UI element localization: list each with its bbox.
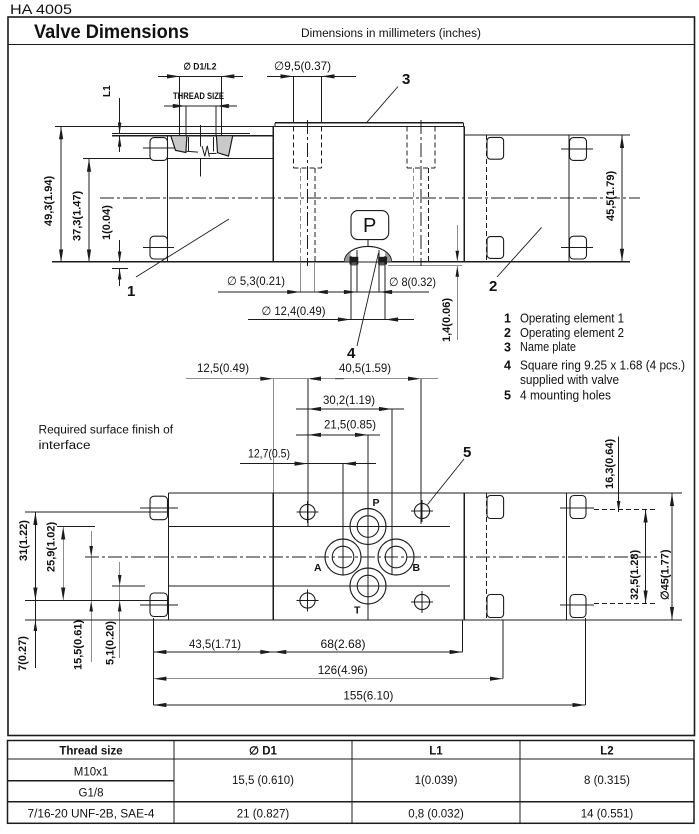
- svg-text:supplied with valve: supplied with valve: [520, 373, 619, 387]
- svg-text:4: 4: [504, 359, 511, 373]
- svg-text:7(0.27): 7(0.27): [17, 636, 29, 671]
- svg-text:16,3(0.64): 16,3(0.64): [604, 439, 616, 489]
- svg-text:14 (0.551): 14 (0.551): [581, 809, 634, 821]
- svg-text:1(0.04): 1(0.04): [101, 205, 113, 240]
- svg-text:49,3(1.94): 49,3(1.94): [43, 176, 55, 226]
- svg-text:4: 4: [347, 345, 356, 362]
- svg-text:4 mounting holes: 4 mounting holes: [520, 389, 611, 403]
- svg-text:0,8 (0.032): 0,8 (0.032): [408, 809, 464, 821]
- svg-text:12,7(0.5): 12,7(0.5): [248, 447, 290, 461]
- svg-text:Required surface finish of: Required surface finish of: [39, 425, 174, 437]
- svg-text:Name plate: Name plate: [520, 340, 576, 354]
- svg-text:Square ring 9.25 x 1.68 (4 pcs: Square ring 9.25 x 1.68 (4 pcs.): [520, 359, 685, 373]
- svg-text:T: T: [354, 605, 361, 617]
- svg-text:L1: L1: [429, 746, 443, 758]
- svg-text:1,4(0.06): 1,4(0.06): [441, 298, 453, 342]
- svg-text:12,5(0.49): 12,5(0.49): [197, 361, 249, 375]
- svg-text:interface: interface: [39, 440, 91, 452]
- svg-text:32,5(1.28): 32,5(1.28): [629, 550, 641, 600]
- svg-text:L2: L2: [600, 746, 613, 758]
- svg-text:1: 1: [127, 283, 135, 300]
- svg-text:B: B: [413, 562, 421, 574]
- svg-text:15,5 (0.610): 15,5 (0.610): [232, 775, 294, 787]
- svg-text:68(2.68): 68(2.68): [321, 637, 366, 651]
- svg-text:21 (0.827): 21 (0.827): [237, 809, 290, 821]
- svg-text:31(1.22): 31(1.22): [18, 520, 30, 561]
- svg-text:2: 2: [489, 278, 497, 295]
- svg-text:G1/8: G1/8: [79, 788, 104, 800]
- svg-text:Thread size: Thread size: [59, 746, 122, 758]
- svg-text:5,1(0.20): 5,1(0.20): [105, 621, 117, 665]
- svg-text:5: 5: [463, 444, 471, 461]
- svg-text:A: A: [314, 562, 322, 574]
- svg-text:∅9,5(0.37): ∅9,5(0.37): [274, 59, 331, 73]
- svg-text:Valve Dimensions: Valve Dimensions: [34, 21, 189, 43]
- svg-text:∅ D1: ∅ D1: [249, 746, 278, 758]
- svg-text:3: 3: [402, 71, 410, 88]
- svg-text:15,5(0.61): 15,5(0.61): [73, 620, 85, 670]
- svg-text:1: 1: [504, 312, 511, 326]
- svg-text:P: P: [373, 497, 380, 509]
- svg-text:43,5(1.71): 43,5(1.71): [189, 637, 241, 651]
- svg-text:∅ 8(0.32): ∅ 8(0.32): [389, 275, 436, 289]
- svg-text:THREAD SIZE: THREAD SIZE: [173, 91, 224, 102]
- svg-text:Operating element 1: Operating element 1: [520, 312, 624, 326]
- svg-text:45,5(1.79): 45,5(1.79): [605, 171, 617, 221]
- svg-text:30,2(1.19): 30,2(1.19): [323, 393, 375, 407]
- svg-text:∅ 12,4(0.49): ∅ 12,4(0.49): [262, 304, 326, 318]
- svg-text:40,5(1.59): 40,5(1.59): [339, 361, 391, 375]
- svg-text:7/16-20 UNF-2B, SAE-4: 7/16-20 UNF-2B, SAE-4: [28, 809, 156, 821]
- svg-text:25,9(1.02): 25,9(1.02): [46, 522, 58, 572]
- svg-text:Operating element 2: Operating element 2: [520, 326, 624, 340]
- svg-text:2: 2: [504, 326, 511, 340]
- svg-text:5: 5: [504, 389, 511, 403]
- svg-text:155(6.10): 155(6.10): [343, 689, 393, 703]
- svg-text:P: P: [363, 215, 376, 237]
- svg-text:3: 3: [504, 341, 511, 355]
- svg-text:37,3(1.47): 37,3(1.47): [72, 191, 84, 241]
- svg-text:∅ 5,3(0.21): ∅ 5,3(0.21): [227, 274, 285, 288]
- svg-text:126(4.96): 126(4.96): [318, 663, 368, 677]
- svg-text:HA 4005: HA 4005: [10, 2, 72, 17]
- svg-text:M10x1: M10x1: [74, 767, 109, 779]
- svg-text:8 (0.315): 8 (0.315): [584, 775, 630, 787]
- svg-text:1(0.039): 1(0.039): [415, 775, 458, 787]
- svg-text:21,5(0.85): 21,5(0.85): [324, 418, 376, 432]
- svg-text:∅ D1/L2: ∅ D1/L2: [184, 62, 217, 73]
- svg-text:Dimensions in millimeters (inc: Dimensions in millimeters (inches): [301, 28, 481, 40]
- svg-text:∅45(1.77): ∅45(1.77): [660, 549, 672, 600]
- svg-text:L1: L1: [102, 85, 113, 97]
